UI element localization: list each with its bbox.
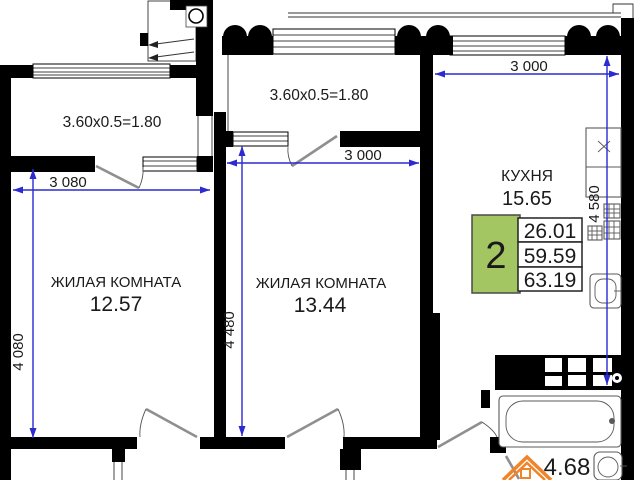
badge-area-total: 63.19 [524, 269, 577, 292]
vent-shaft [545, 376, 562, 386]
column-icon [567, 25, 591, 49]
window-middle-balcony [273, 29, 395, 54]
wall-divider-rooms [214, 112, 226, 444]
dim-value-living2-depth: 4 480 [221, 311, 238, 349]
floor-plan-drawing: 3 080 4 080 3 000 4 480 3 000 4 580 3.60… [0, 0, 640, 480]
pipe-riser-dot [615, 376, 619, 380]
room-area-kitchen: 15.65 [502, 188, 552, 210]
badge-room-count: 2 [485, 235, 506, 277]
vent-shaft [568, 358, 586, 372]
window-size-label: 3.60x0.5=1.80 [270, 87, 369, 104]
window-size-label: 3.60x0.5=1.80 [63, 114, 162, 131]
room-name-kitchen: КУХНЯ [501, 168, 553, 185]
wall-mid-balcony-corner [226, 131, 233, 147]
wall-right-outer [621, 18, 634, 480]
room-name-living2: ЖИЛАЯ КОМНАТА [256, 275, 387, 292]
wall-mid-balcony-bottom [340, 131, 433, 147]
window-left-room [143, 157, 197, 171]
dim-value-kitchen-depth: 4 580 [586, 185, 603, 223]
column-icon [596, 25, 620, 49]
wall-bathroom-left-stub [481, 390, 490, 408]
window-left-balcony [33, 64, 170, 78]
apartment-info-badge: 2 26.01 59.59 63.19 [472, 215, 582, 293]
column-icon [223, 25, 247, 49]
room-area-living2: 13.44 [294, 294, 347, 317]
column-icon [248, 25, 272, 49]
badge-area-living: 26.01 [524, 220, 577, 243]
dim-value-kitchen-width: 3 000 [510, 58, 548, 75]
wall-left-outer [0, 65, 11, 480]
badge-area-main: 59.59 [524, 245, 577, 268]
burner-square [588, 226, 602, 240]
room-area-bathroom: 4.68 [544, 454, 591, 480]
window-middle-room [233, 132, 288, 146]
vent-shaft [593, 358, 612, 372]
window-kitchen [450, 36, 565, 55]
dim-value-living2-width: 3 000 [344, 147, 382, 164]
wall-duct-block [140, 33, 148, 46]
wall-bottom-2 [200, 437, 285, 449]
vent-shaft [568, 375, 586, 386]
vent-shafts [545, 358, 622, 386]
wall-stub-left [112, 449, 125, 462]
wall-divider-kitchen [420, 50, 433, 440]
wall-balcony-left-corner [0, 65, 33, 78]
wall-bottom-1 [11, 437, 137, 449]
floor-plan: 3 080 4 080 3 000 4 480 3 000 4 580 3.60… [0, 0, 640, 480]
wall-balcony-bottom-corner [197, 156, 213, 172]
room-name-living1: ЖИЛАЯ КОМНАТА [51, 274, 182, 291]
vent-shaft [545, 358, 562, 372]
column-icon [426, 25, 450, 49]
bathtub [499, 396, 621, 447]
wall-bottom-3 [343, 437, 437, 449]
room-area-living1: 12.57 [90, 293, 143, 316]
dim-value-living1-depth: 4 080 [10, 333, 27, 371]
wall-stub-center [340, 449, 361, 470]
wall-balcony-bottom [0, 156, 95, 172]
dim-value-living1-width: 3 080 [49, 174, 87, 191]
bathtub-faucet-icon [609, 418, 615, 424]
riser-pipe-icon [189, 9, 203, 23]
wall-pilaster [433, 313, 440, 440]
column-icon [397, 25, 421, 49]
